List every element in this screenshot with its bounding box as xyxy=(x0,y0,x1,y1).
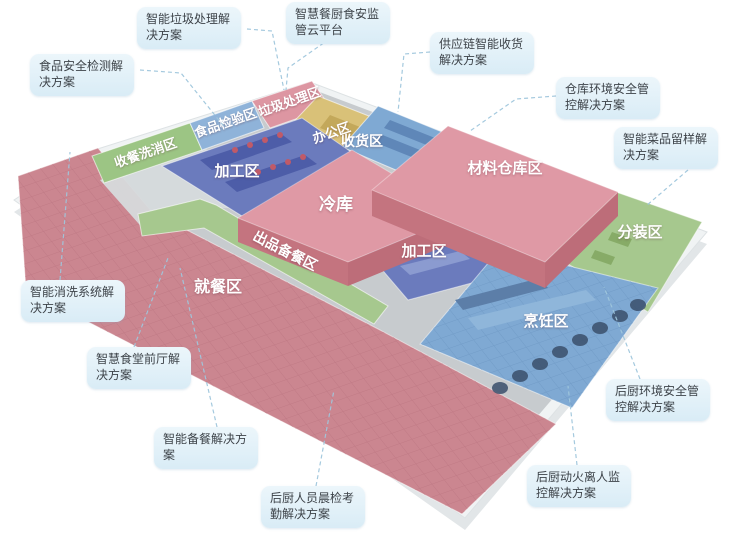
zone-label-processing-north: 加工区 xyxy=(213,162,259,180)
callout-food-safety-cloud-platform: 智慧餐厨食安监管云平台 xyxy=(286,2,390,44)
zone-label-material-warehouse: 材料仓库区 xyxy=(467,159,542,177)
callout-fire-unattended-monitor: 后厨动火离人监控解决方案 xyxy=(527,465,631,507)
callout-food-safety-testing: 食品安全检测解决方案 xyxy=(30,54,134,96)
zone-label-receiving: 收货区 xyxy=(341,133,383,150)
callout-smart-canteen-front-hall: 智慧食堂前厅解决方案 xyxy=(87,347,191,389)
infographic-canvas: 收餐洗消区 食品检验区 垃圾处理区 办公区 收货区 材料仓库区 加工区 冷库 加… xyxy=(0,0,745,533)
zone-label-dining-area: 就餐区 xyxy=(194,277,242,296)
connector-dish-sample xyxy=(646,170,688,206)
callout-dish-sample-retention: 智能菜品留样解决方案 xyxy=(614,127,718,169)
callout-smart-garbage: 智能垃圾处理解决方案 xyxy=(137,7,241,49)
connector-smart-garbage xyxy=(247,29,284,90)
connector-warehouse-env xyxy=(470,96,556,131)
callout-kitchen-env-safety: 后厨环境安全管控解决方案 xyxy=(606,379,710,421)
callout-supply-chain-receiving: 供应链智能收货解决方案 xyxy=(430,32,534,74)
zone-label-processing-central: 加工区 xyxy=(400,242,446,260)
callout-staff-morning-check: 后厨人员晨检考勤解决方案 xyxy=(261,486,365,528)
callout-smart-washing-system: 智能消洗系统解决方案 xyxy=(21,280,125,322)
callout-warehouse-env-safety: 仓库环境安全管控解决方案 xyxy=(556,77,660,119)
zone-label-portioning: 分装区 xyxy=(617,223,662,241)
zone-label-cold-storage: 冷库 xyxy=(319,194,353,215)
zone-label-cooking: 烹饪区 xyxy=(523,312,568,330)
connector-supply-chain xyxy=(398,52,430,112)
callout-smart-meal-prep: 智能备餐解决方案 xyxy=(154,427,258,469)
